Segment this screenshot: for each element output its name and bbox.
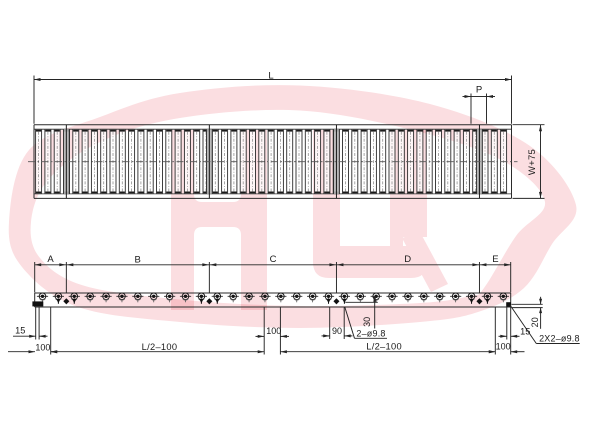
svg-text:20: 20 [530, 317, 540, 327]
svg-text:2X2–ø9.8: 2X2–ø9.8 [539, 333, 580, 343]
svg-text:B: B [135, 254, 141, 265]
svg-text:L: L [268, 70, 273, 81]
svg-text:100: 100 [496, 342, 511, 352]
svg-text:15: 15 [15, 326, 25, 336]
svg-text:30: 30 [362, 317, 372, 327]
svg-text:90: 90 [332, 326, 342, 336]
svg-text:W+75: W+75 [527, 149, 538, 175]
svg-text:2–ø9.8: 2–ø9.8 [356, 328, 385, 338]
svg-text:E: E [492, 254, 498, 265]
svg-text:100: 100 [35, 342, 50, 352]
svg-text:100: 100 [266, 326, 281, 336]
svg-text:L/2–100: L/2–100 [142, 342, 178, 352]
svg-text:P: P [476, 85, 482, 96]
svg-text:D: D [404, 254, 411, 265]
svg-text:A: A [47, 254, 54, 265]
svg-text:C: C [270, 254, 277, 265]
svg-text:L/2–100: L/2–100 [366, 342, 402, 352]
